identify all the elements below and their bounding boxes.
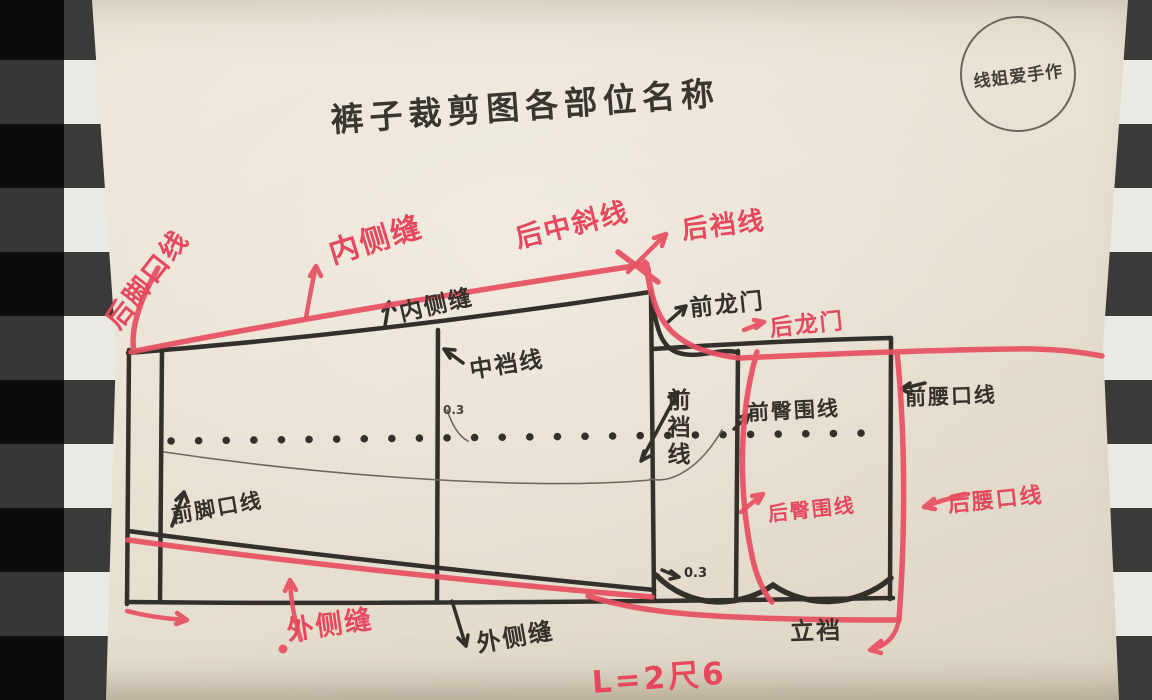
red-marker-group: [128, 252, 1102, 654]
note-0-3-mid: 0.3: [443, 403, 464, 417]
hem-allowance-line: [160, 349, 162, 602]
note-0-3-crotch: 0.3: [684, 566, 707, 581]
red-waist-line: [740, 349, 1102, 358]
right-edge-line: [890, 338, 891, 599]
left-edge-line: [127, 350, 129, 604]
crotch-note-arrow: [662, 570, 679, 579]
red-slanted-outseam: [128, 540, 652, 597]
red-dot: [279, 645, 288, 654]
pencil-guide-group: [164, 410, 722, 484]
maker-stamp: 线姐爱手作: [960, 16, 1076, 132]
hip-level-dotted-line: [171, 433, 877, 441]
rise-end-arrow: [870, 618, 899, 653]
photo-scene: 裤子裁剪图各部位名称 线姐爱手作 后脚口线 内侧缝 后中斜线 后裆线 内侧缝 前…: [0, 0, 1152, 700]
label-length-formula: L=2尺6: [591, 659, 728, 699]
mid-crotch-vertical: [437, 330, 438, 600]
label-front-waist-line: 前腰口线: [905, 385, 998, 409]
label-front-hip-line: 前臀围线: [747, 398, 840, 424]
hip-panel-vertical: [736, 351, 738, 597]
maker-stamp-text: 线姐爱手作: [972, 56, 1064, 92]
inner-seam-red-arrow: [306, 266, 321, 318]
label-rise: 立裆: [790, 618, 843, 644]
slanted-hem-line: [128, 531, 654, 590]
front-gate-arrow: [668, 306, 686, 322]
mid-crotch-arrow: [444, 349, 463, 363]
back-gate-arrow: [744, 320, 764, 330]
red-back-crotch-curve: [742, 352, 772, 602]
bottom-left-arrow: [127, 611, 187, 624]
red-right-vertical: [897, 352, 904, 620]
bottom-outseam-line: [127, 598, 893, 603]
pencil-sag-curve: [164, 452, 650, 484]
label-front-crotch-line: 前裆线: [664, 388, 687, 500]
outer-seam-down-arrow: [452, 601, 468, 646]
